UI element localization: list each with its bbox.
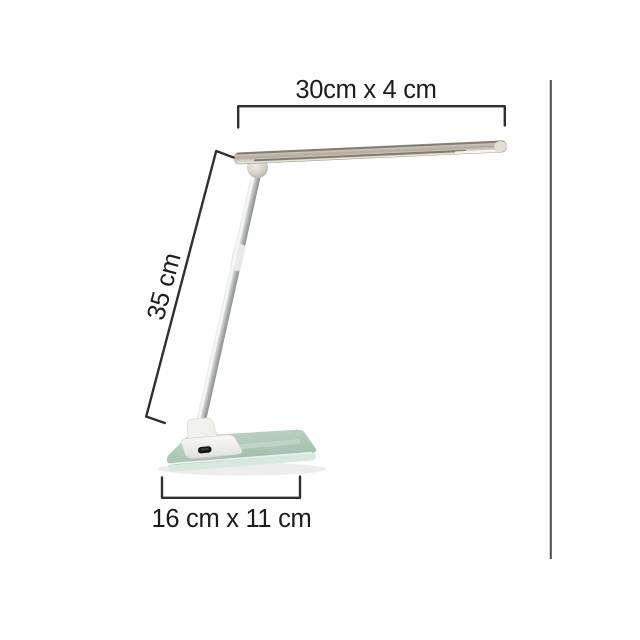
mount-base-plate [181,435,242,458]
product-dimension-diagram: 30cm x 4 cm 35 cm 16 cm x 11 cm [0,0,640,640]
base-dimension-label: 16 cm x 11 cm [151,505,311,533]
lamp-diagram-canvas: 30cm x 4 cm 35 cm 16 cm x 11 cm [0,0,640,640]
head-dimension-label: 30cm x 4 cm [295,76,436,104]
lamp-head-end-cap [494,141,506,152]
